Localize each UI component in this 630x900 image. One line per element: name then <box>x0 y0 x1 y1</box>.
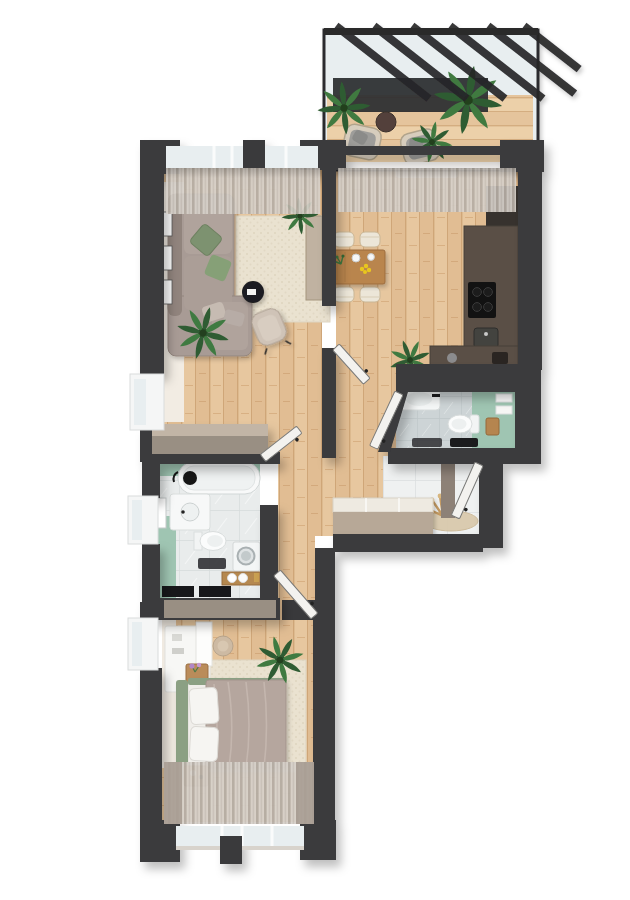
pillow <box>189 726 219 761</box>
wardrobe <box>333 498 433 536</box>
coffee-table <box>242 281 264 303</box>
desk-item <box>172 648 184 654</box>
wall-segment <box>396 364 518 392</box>
dining-chair <box>360 287 380 302</box>
rolled-towel <box>239 574 248 583</box>
wall-segment <box>515 364 541 464</box>
washing-machine <box>233 542 260 571</box>
towel-bench <box>222 572 266 585</box>
desk-item <box>172 634 182 641</box>
dining-chair <box>360 232 380 247</box>
radiator <box>199 586 231 597</box>
bedroom-side-window-glass <box>132 622 142 666</box>
wall-segment <box>260 505 278 600</box>
kettle <box>447 353 457 363</box>
pillow <box>189 687 219 725</box>
dining-chair <box>334 232 354 247</box>
bedroom-drape-right <box>296 762 314 824</box>
wall-segment <box>300 820 336 860</box>
plate <box>352 254 360 262</box>
console-cabinet-top <box>152 424 268 436</box>
wooden-stool <box>486 418 499 435</box>
plate <box>368 254 375 261</box>
radiator <box>450 438 478 447</box>
wall-segment <box>140 668 162 840</box>
bathtub <box>174 462 261 494</box>
flowers <box>189 663 194 668</box>
cooktop <box>468 282 496 318</box>
wall-segment <box>315 548 335 604</box>
apartment-render-stage <box>0 0 630 900</box>
kitchen-sink <box>474 328 498 348</box>
wall-segment <box>220 836 242 864</box>
pouf-top <box>218 641 229 652</box>
left-window-glass <box>134 379 146 425</box>
bathroom-window-glass <box>132 500 142 540</box>
wall-hung-toilet <box>194 532 226 551</box>
dining-table <box>333 250 385 284</box>
wall-segment <box>313 600 335 824</box>
rolled-towel <box>228 574 237 583</box>
balcony-side-table <box>376 112 396 132</box>
radiator <box>162 586 194 597</box>
curtain-shadow <box>338 168 516 178</box>
desk-shelf <box>196 622 212 666</box>
bath-mat <box>198 558 226 569</box>
bedroom-drape-left <box>164 762 182 824</box>
apartment-floor-plan-3d-render <box>0 0 630 900</box>
shower-head <box>183 471 197 485</box>
media-console <box>306 216 322 300</box>
wall-segment <box>333 534 483 552</box>
faucet <box>181 510 185 514</box>
duvet <box>206 680 286 768</box>
wall-segment <box>243 140 265 168</box>
bottle <box>254 573 259 582</box>
bathroom-vanity <box>156 494 210 530</box>
wall-segment <box>142 460 160 498</box>
wall-segment <box>140 820 180 862</box>
wall-segment <box>142 544 160 602</box>
entry-wall-panel <box>441 464 455 518</box>
bedroom-curtains <box>164 762 314 824</box>
wall-segment <box>388 448 516 464</box>
wall-hung-toilet <box>448 415 479 433</box>
curtain-shadow <box>166 168 320 178</box>
wall-segment <box>322 348 336 458</box>
bath-mat <box>412 438 442 447</box>
small-appliance <box>492 352 508 364</box>
wall-segment <box>322 140 336 306</box>
wall-segment <box>518 148 542 370</box>
wall-segment <box>140 170 164 374</box>
living-window-glass <box>166 146 318 168</box>
faucet <box>484 332 488 336</box>
flowers <box>197 663 201 667</box>
wall-segment <box>479 456 503 548</box>
pergola-top-beam <box>324 28 538 35</box>
wall-segment <box>346 146 504 155</box>
dining-chair <box>334 287 354 302</box>
wall-top-light <box>164 600 276 618</box>
